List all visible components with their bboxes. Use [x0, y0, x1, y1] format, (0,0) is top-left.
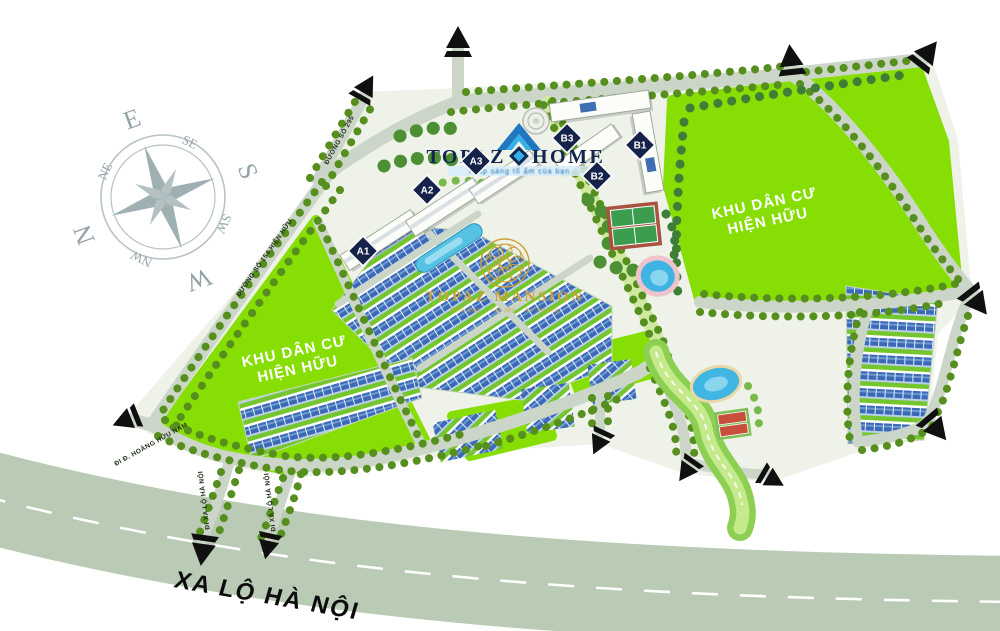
compass-letter-n: N [67, 221, 101, 249]
compass-star [93, 127, 234, 268]
compass-letter-sw: SW [213, 212, 235, 237]
svg-text:A3: A3 [470, 157, 483, 168]
compass-rose: E SE S SW W NW N NE [67, 103, 264, 298]
compass-letter-ne: NE [94, 160, 115, 182]
svg-text:A2: A2 [421, 186, 434, 197]
tennis-court-north [606, 201, 662, 250]
site-plan-page: E SE S SW W NW N NE TOPAZ HOME Thắp sáng… [0, 0, 1000, 631]
master-plan-svg: E SE S SW W NW N NE TOPAZ HOME Thắp sáng… [0, 0, 1000, 631]
svg-text:B1: B1 [634, 141, 647, 152]
compass-letter-w: W [182, 262, 215, 298]
pool-b [638, 258, 677, 294]
svg-text:B3: B3 [561, 134, 574, 145]
compass-letter-s: S [232, 159, 264, 183]
svg-text:A1: A1 [357, 247, 370, 258]
mansion-title: TOPAZ MANSION [425, 289, 584, 305]
compass-letter-e: E [120, 103, 145, 136]
highway-band [0, 495, 1000, 602]
tennis-court-south [714, 408, 752, 440]
mansion-tagline: Phú quý · Tài lộc · An khang [450, 307, 560, 314]
svg-text:B2: B2 [591, 172, 604, 183]
round-plaza [523, 108, 549, 134]
